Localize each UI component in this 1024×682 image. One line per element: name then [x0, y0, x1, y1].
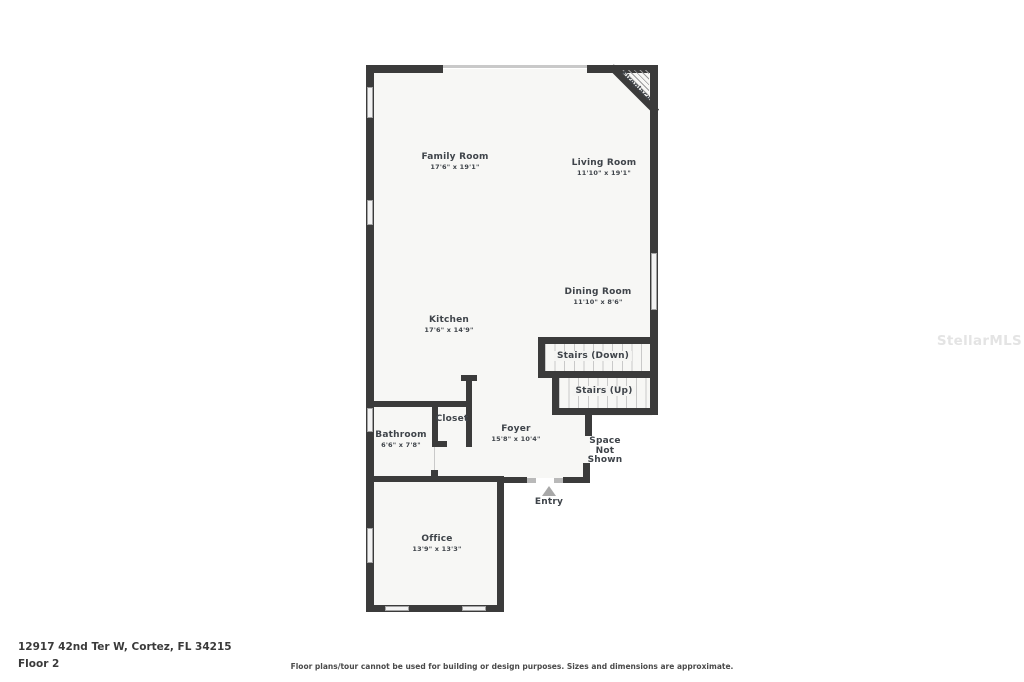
room-label-office: Office 13'9" x 13'3"	[412, 534, 461, 553]
room-dims: 11'10" x 19'1"	[572, 169, 637, 177]
wall-bathroom-top	[366, 401, 472, 407]
entry-arrow-icon	[542, 486, 556, 496]
wall-stairs-up-bottom	[552, 408, 658, 415]
wall-stairs-down-top	[538, 337, 650, 344]
room-name: Family Room	[421, 152, 488, 162]
wall-stairs-shared	[538, 371, 650, 378]
room-dims: 11'10" x 8'6"	[565, 298, 632, 306]
window-right-dining	[651, 253, 657, 310]
room-label-stairs-down: Stairs (Down)	[554, 351, 632, 361]
wall-stub-below-stairs	[585, 415, 592, 436]
window-office-bottom-2	[462, 606, 486, 611]
wall-office-top	[366, 476, 503, 482]
room-label-kitchen: Kitchen 17'6" x 14'9"	[424, 315, 473, 334]
window-left-4	[367, 528, 373, 563]
room-label-dining-room: Dining Room 11'10" x 8'6"	[565, 287, 632, 306]
room-dims: 17'6" x 19'1"	[421, 163, 488, 171]
room-label-space-not-shown: Space Not Shown	[588, 437, 623, 466]
room-name: Foyer	[491, 424, 540, 434]
room-dims: 6'6" x 7'8"	[375, 441, 426, 449]
room-name: Dining Room	[565, 287, 632, 297]
wall-office-right	[497, 476, 504, 612]
wall-top-left	[366, 65, 443, 73]
room-label-living-room: Living Room 11'10" x 19'1"	[572, 158, 637, 177]
room-name-line: Shown	[588, 456, 623, 466]
property-address: 12917 42nd Ter W, Cortez, FL 34215	[18, 641, 232, 653]
floor-plan-page: Family Room 17'6" x 19'1" Living Room 11…	[0, 0, 1024, 682]
wall-kitchen-stub-cap	[461, 375, 477, 381]
room-dims: 13'9" x 13'3"	[412, 545, 461, 553]
room-label-stairs-up: Stairs (Up)	[572, 386, 635, 396]
wall-space-corner	[583, 463, 590, 483]
room-name: Bathroom	[375, 430, 426, 440]
window-left-1	[367, 87, 373, 118]
room-dims: 15'8" x 10'4"	[491, 435, 540, 443]
wall-closet-right	[466, 375, 472, 447]
stellarmls-watermark: StellarMLS	[937, 333, 1022, 349]
bathroom-door-line	[434, 447, 435, 472]
disclaimer-text: Floor plans/tour cannot be used for buil…	[291, 662, 734, 671]
window-top	[443, 65, 587, 68]
room-dims: 17'6" x 14'9"	[424, 326, 473, 334]
entry-door-frame-left	[527, 478, 536, 483]
wall-entry-left	[500, 477, 527, 483]
room-label-entry: Entry	[535, 497, 563, 507]
room-name: Stairs (Up)	[572, 386, 635, 396]
window-office-bottom-1	[385, 606, 409, 611]
window-left-2	[367, 200, 373, 225]
room-label-family-room: Family Room 17'6" x 19'1"	[421, 152, 488, 171]
room-name: Closet	[436, 414, 469, 424]
wall-right	[650, 65, 658, 415]
room-name: Office	[412, 534, 461, 544]
room-name: Entry	[535, 497, 563, 507]
room-name: Kitchen	[424, 315, 473, 325]
room-name: Living Room	[572, 158, 637, 168]
room-label-closet: Closet	[436, 414, 469, 424]
room-label-bathroom: Bathroom 6'6" x 7'8"	[375, 430, 426, 449]
room-name: Stairs (Down)	[554, 351, 632, 361]
floor-number-label: Floor 2	[18, 658, 59, 670]
window-left-3	[367, 408, 373, 432]
entry-door-frame-right	[554, 478, 563, 483]
room-label-foyer: Foyer 15'8" x 10'4"	[491, 424, 540, 443]
